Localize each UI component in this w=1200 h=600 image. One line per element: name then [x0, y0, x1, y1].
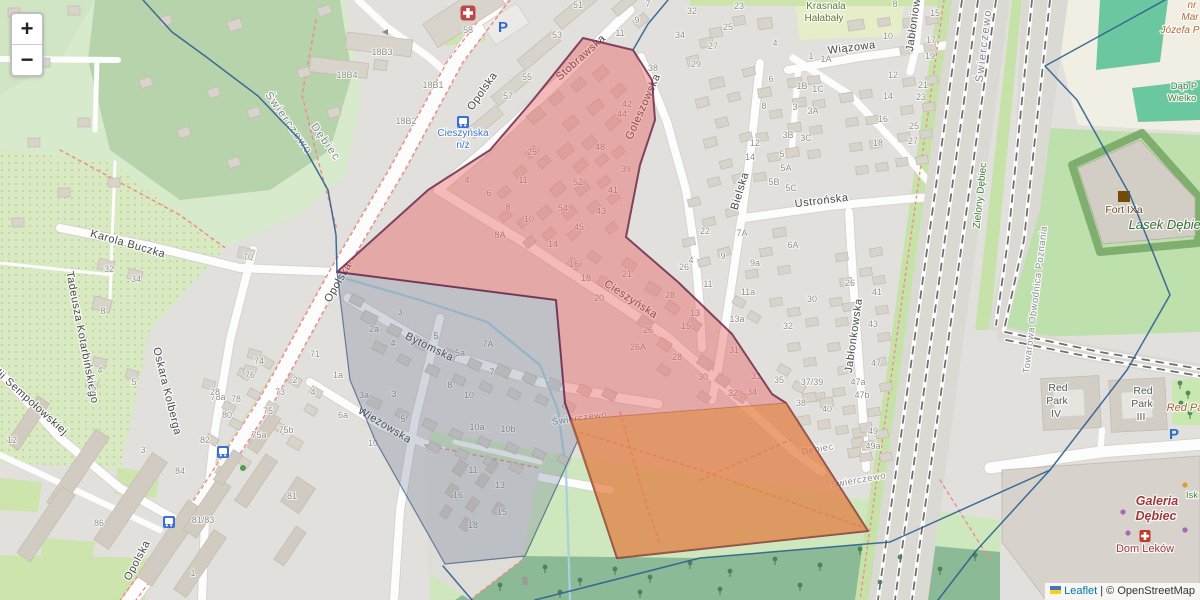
- house-number: 15: [930, 8, 940, 18]
- house-number: 18B3: [371, 47, 392, 57]
- building: [859, 452, 872, 462]
- building: [902, 77, 915, 87]
- house-number: 22: [700, 226, 710, 236]
- building: [12, 218, 24, 227]
- house-number: 53: [552, 30, 562, 40]
- zoom-in-button[interactable]: +: [12, 14, 42, 45]
- house-number: 5: [779, 149, 784, 159]
- house-number: 57: [503, 91, 513, 101]
- house-number: 4: [97, 365, 102, 375]
- house-number: 26: [845, 278, 855, 288]
- poi-label: Dąb P: [1171, 81, 1197, 92]
- svg-text:P: P: [1169, 426, 1179, 443]
- house-number: 7: [645, 0, 650, 9]
- house-number: 75a: [251, 430, 266, 440]
- house-number: 12: [7, 435, 17, 445]
- building: [757, 87, 771, 98]
- house-number: 84: [175, 466, 185, 476]
- house-number: 47b: [854, 390, 869, 400]
- building: [805, 317, 818, 327]
- house-number: 18B2: [395, 116, 416, 126]
- house-number: 71: [310, 349, 320, 359]
- house-number: 12: [750, 138, 760, 148]
- house-number: 76: [245, 370, 255, 380]
- house-number: 1a: [333, 370, 343, 380]
- poi-label: Isk: [1186, 490, 1198, 501]
- house-number: 35: [774, 375, 784, 385]
- house-number: 19: [925, 51, 935, 61]
- building: [28, 138, 40, 147]
- house-number: 3C: [800, 133, 812, 143]
- building: [757, 17, 773, 30]
- attribution-bar: Leaflet | © OpenStreetMap: [1045, 583, 1200, 600]
- house-number: 4: [310, 387, 315, 397]
- house-number: 3B: [782, 130, 793, 140]
- building: [875, 305, 888, 315]
- poi-label: Red Pa: [1167, 402, 1200, 414]
- house-number: 47: [871, 358, 881, 368]
- house-number: 5: [131, 377, 136, 387]
- house-number: 38: [796, 398, 806, 408]
- poi-label: Red: [1048, 382, 1067, 394]
- building: [859, 267, 872, 277]
- building: [879, 452, 892, 462]
- building: [803, 357, 816, 367]
- house-number: 40: [822, 404, 832, 414]
- building: [872, 275, 885, 285]
- poi-label: n/ż: [456, 140, 469, 151]
- building: [745, 269, 758, 279]
- house-number: 16: [878, 114, 888, 124]
- house-number: 5B: [768, 177, 779, 187]
- house-number: 75: [263, 406, 273, 416]
- building: [58, 188, 70, 197]
- house-number: 3A: [807, 106, 818, 116]
- house-number: 18B1: [422, 80, 443, 90]
- shop-dot-icon: [1125, 530, 1130, 535]
- house-number: 25: [909, 121, 919, 131]
- house-number: 51: [573, 0, 583, 10]
- house-number: 29: [691, 59, 701, 69]
- poi-label: Park: [1046, 395, 1068, 407]
- house-number: 58: [463, 25, 473, 35]
- hospital-icon: [461, 6, 476, 21]
- house-number: 1: [808, 51, 813, 61]
- parking-icon: P: [498, 19, 508, 36]
- house-number: 26: [679, 262, 689, 272]
- poi-label: Park: [1131, 398, 1153, 410]
- map-canvas[interactable]: PPOpolskaOpolskaOpolskaStobrawskaGoleszo…: [0, 0, 1200, 600]
- house-number: 28: [210, 387, 220, 397]
- shop-dot-icon: [1182, 527, 1187, 532]
- house-number: 1A: [820, 54, 831, 64]
- building: [787, 307, 800, 317]
- building: [855, 165, 868, 175]
- house-number: 13a: [729, 314, 744, 324]
- house-number: 30: [807, 294, 817, 304]
- house-number: 47a: [850, 377, 865, 387]
- poi-dot-icon: [1182, 482, 1187, 487]
- house-number: 27: [908, 136, 918, 146]
- house-number: 18: [873, 138, 883, 148]
- house-number: 34: [131, 274, 141, 284]
- building: [108, 178, 120, 187]
- house-number: 80: [222, 410, 232, 420]
- building: [900, 105, 913, 115]
- tree-icon: [240, 465, 246, 471]
- building: [769, 109, 782, 119]
- leaflet-link[interactable]: Leaflet: [1064, 585, 1097, 597]
- poi-label: Józefa P: [1160, 25, 1200, 36]
- house-number: 6a: [338, 410, 348, 420]
- ukraine-flag-icon: [1050, 586, 1061, 594]
- house-number: 12: [888, 70, 898, 80]
- house-number: 23: [916, 92, 926, 102]
- house-number: 17: [926, 35, 936, 45]
- house-number: 3: [140, 445, 145, 455]
- house-number: 82: [200, 435, 210, 445]
- house-number: 34: [675, 30, 685, 40]
- building: [807, 149, 820, 159]
- house-number: 10: [883, 31, 893, 41]
- house-number: 38: [648, 63, 658, 73]
- house-number: 1: [190, 568, 195, 578]
- parking-icon: P: [1169, 426, 1179, 443]
- building: [787, 342, 800, 352]
- building: [919, 129, 932, 139]
- leaflet-map[interactable]: PPOpolskaOpolskaOpolskaStobrawskaGoleszo…: [0, 0, 1200, 600]
- poi-label: Hałabały: [805, 13, 844, 24]
- house-number: 9: [634, 15, 639, 25]
- house-number: 21: [918, 80, 928, 90]
- house-number: 7A: [736, 228, 747, 238]
- house-number: 32: [687, 6, 697, 16]
- poi-label: Mar: [1181, 12, 1199, 23]
- building: [709, 27, 722, 38]
- building: [777, 265, 790, 275]
- house-number: 81: [287, 491, 297, 501]
- bus-stop-icon: [217, 446, 229, 458]
- house-number: 6: [768, 74, 773, 84]
- poi-label: Cieszyńska: [437, 128, 489, 139]
- house-number: 11: [703, 279, 712, 289]
- zoom-out-button[interactable]: −: [12, 45, 42, 75]
- shop-dot-icon: [1120, 509, 1125, 514]
- building: [769, 297, 782, 307]
- poi-label: Wielko: [1168, 93, 1197, 104]
- house-number: 27: [708, 41, 718, 51]
- building: [859, 89, 872, 99]
- building: [759, 247, 772, 257]
- house-number: 23: [734, 1, 744, 11]
- house-number: 70: [243, 252, 253, 262]
- building: [877, 17, 890, 27]
- house-number: 4: [772, 38, 777, 48]
- house-number: 25: [723, 22, 733, 32]
- building: [842, 405, 855, 415]
- building: [875, 162, 888, 172]
- house-number: 14: [883, 91, 893, 101]
- house-number: 9a: [750, 258, 760, 268]
- house-number: 73: [275, 387, 285, 397]
- house-number: 41: [872, 287, 882, 297]
- house-number: 49: [868, 426, 878, 436]
- building: [849, 142, 862, 152]
- house-number: 55: [522, 72, 532, 82]
- house-number: 74: [254, 356, 264, 366]
- house-number: 49a: [865, 441, 880, 451]
- poi-label: Red: [1133, 385, 1152, 397]
- osm-link[interactable]: © OpenStreetMap: [1106, 585, 1195, 597]
- attribution-separator: |: [1097, 585, 1106, 597]
- building: [869, 247, 882, 257]
- building: [845, 117, 858, 127]
- building: [877, 332, 890, 342]
- poi-label: III: [1137, 411, 1146, 423]
- house-number: 8: [761, 101, 766, 111]
- pharmacy-icon: [1140, 530, 1151, 542]
- poi-label: Galeria: [1136, 494, 1178, 508]
- house-number: 11: [615, 28, 624, 38]
- bus-stop-icon: [457, 116, 469, 128]
- poi-label: Dębiec: [1136, 509, 1177, 523]
- house-number: 8: [892, 0, 897, 9]
- house-number: 37/39: [801, 377, 824, 387]
- house-number: 5C: [785, 183, 797, 193]
- poi-label: Dom Leków: [1116, 543, 1174, 555]
- building: [732, 15, 745, 26]
- building: [847, 19, 864, 31]
- building: [817, 419, 830, 430]
- house-number: 2: [292, 375, 297, 385]
- building: [835, 317, 848, 327]
- house-number: 32: [783, 321, 793, 331]
- building: [832, 387, 845, 397]
- house-number: 4: [688, 255, 693, 265]
- poi-label: nr: [1188, 0, 1198, 11]
- poi-label: Krasnala: [806, 1, 846, 12]
- shrine-icon: [523, 577, 528, 585]
- poi-label: IV: [1051, 408, 1061, 420]
- house-number: 86: [94, 518, 104, 528]
- house-number: 11a: [741, 287, 755, 297]
- building: [78, 118, 90, 127]
- building: [772, 227, 786, 238]
- house-number: 18B4: [336, 70, 357, 80]
- house-number: 78: [231, 394, 241, 404]
- building: [922, 102, 935, 112]
- house-number: 8: [100, 306, 105, 316]
- building: [879, 382, 892, 392]
- building: [867, 407, 880, 417]
- house-number: 14: [745, 152, 755, 162]
- building: [753, 172, 766, 182]
- building: [785, 147, 799, 158]
- building: [915, 155, 928, 165]
- house-number: 5A: [780, 163, 791, 173]
- building: [835, 252, 848, 262]
- zoom-control: + −: [10, 12, 44, 77]
- house-number: 32: [104, 264, 114, 274]
- house-number: 81/83: [192, 515, 215, 525]
- building: [829, 297, 842, 307]
- building: [827, 342, 840, 352]
- house-number: 75b: [278, 425, 293, 435]
- bus-stop-icon: [163, 516, 175, 528]
- building: [895, 157, 908, 167]
- building: [839, 92, 853, 103]
- house-number: 6A: [787, 240, 798, 250]
- building: [68, 6, 80, 15]
- building: [865, 115, 878, 125]
- house-number: 1C: [812, 84, 824, 94]
- svg-text:P: P: [498, 19, 508, 36]
- building: [835, 425, 848, 435]
- house-number: 43: [868, 319, 878, 329]
- house-number: 2: [91, 385, 96, 395]
- house-number: 1B: [796, 81, 807, 91]
- house-number: 3: [792, 102, 797, 112]
- house-number: 9: [720, 251, 725, 261]
- building: [373, 59, 387, 71]
